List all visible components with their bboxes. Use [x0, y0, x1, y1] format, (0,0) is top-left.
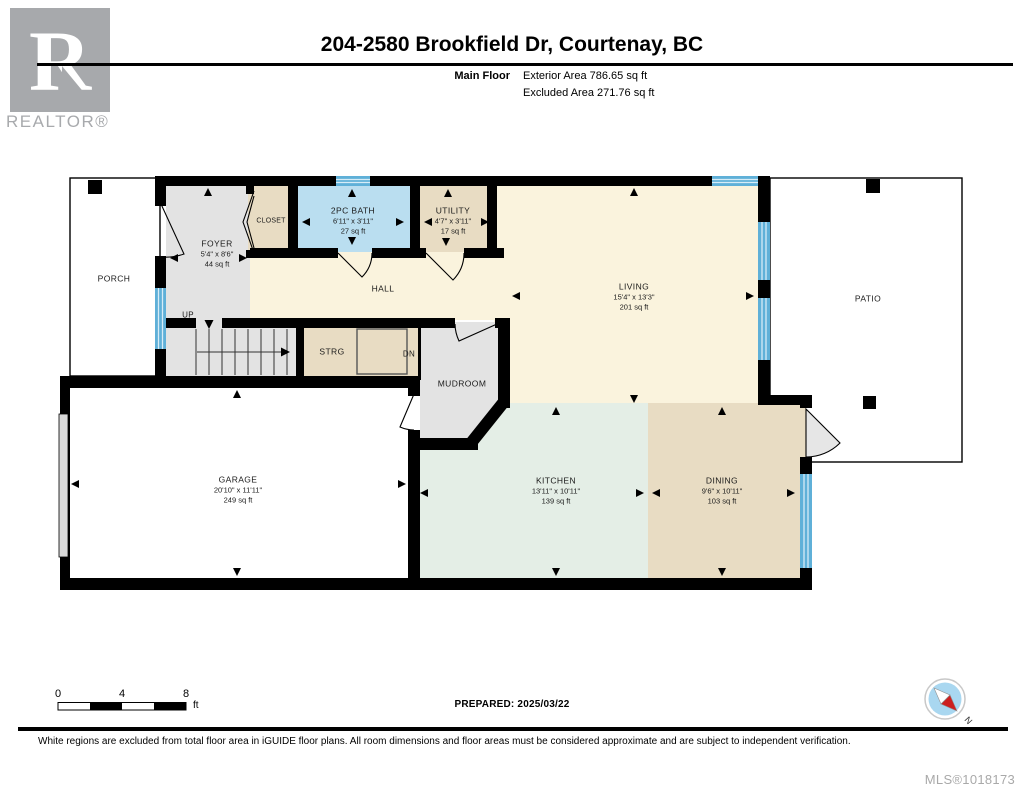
room-label-porch: PORCH — [98, 273, 131, 284]
exterior-area-label: Exterior Area 786.65 sq ft — [523, 70, 647, 82]
mls-number: MLS®1018173 — [925, 772, 1015, 787]
room-label-closet: CLOSET — [256, 216, 285, 225]
stairs-down-label: DN — [403, 350, 415, 359]
stairs-up-label: UP — [182, 311, 194, 320]
realtor-logo: R — [10, 8, 110, 112]
floor-name-label: Main Floor — [360, 70, 510, 82]
room-label-foyer: FOYER 5'4" x 8'6" 44 sq ft — [201, 239, 234, 270]
storage-appliance — [357, 329, 407, 374]
room-label-hall: HALL — [372, 283, 395, 294]
room-label-garage: GARAGE 20'10" x 11'11" 249 sq ft — [214, 475, 262, 506]
room-label-living: LIVING 15'4" x 13'3" 201 sq ft — [613, 282, 654, 313]
compass-north-label: N — [963, 715, 975, 727]
room-label-utility: UTILITY 4'7" x 3'11" 17 sq ft — [435, 206, 471, 237]
room-label-patio: PATIO — [855, 293, 881, 304]
footer-divider — [18, 727, 1008, 731]
page-title: 204-2580 Brookfield Dr, Courtenay, BC — [0, 33, 1024, 57]
garage-door — [59, 414, 68, 557]
room-label-dining: DINING 9'6" x 10'11" 103 sq ft — [702, 476, 743, 507]
floor-plan-drawing: N — [0, 0, 1024, 791]
room-label-kitchen: KITCHEN 13'11" x 10'11" 139 sq ft — [532, 476, 580, 507]
excluded-area-label: Excluded Area 271.76 sq ft — [523, 87, 654, 99]
logo-wordmark: REALTOR® — [6, 112, 126, 132]
header-divider — [37, 63, 1013, 66]
disclaimer-text: White regions are excluded from total fl… — [38, 736, 998, 747]
prepared-date: PREPARED: 2025/03/22 — [0, 699, 1024, 710]
room-label-mudroom: MUDROOM — [438, 378, 487, 389]
floor-plan-page: N R REALTOR® 204-2580 Brookfield Dr, Cou… — [0, 0, 1024, 791]
room-label-strg: STRG — [319, 346, 344, 357]
room-label-bath: 2PC BATH 6'11" x 3'11" 27 sq ft — [331, 206, 375, 237]
